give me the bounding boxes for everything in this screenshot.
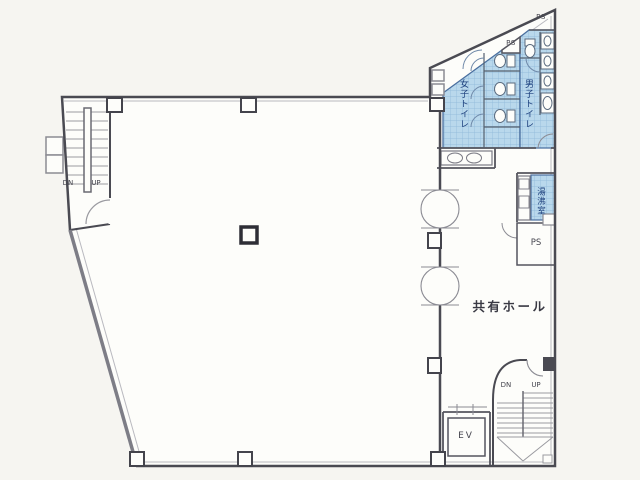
column <box>428 233 441 248</box>
floor-plan: DN UP PS PS 女子トイレ 男子トイレ 湯沸室 PS 共有ホール EV … <box>0 0 640 480</box>
column <box>428 358 441 373</box>
center-column <box>241 227 257 243</box>
label-elevator: EV <box>451 432 481 441</box>
label-stair-nw-up: UP <box>85 180 107 187</box>
label-stair-se-up: UP <box>524 382 548 389</box>
column <box>238 452 252 466</box>
column <box>432 84 444 95</box>
column <box>432 70 444 81</box>
label-womens-toilet: 女子トイレ <box>458 74 467 134</box>
stair-landing-ledge <box>46 137 63 155</box>
mens-stall-toilet <box>525 39 535 58</box>
urinals <box>541 33 554 113</box>
label-mens-toilet: 男子トイレ <box>523 74 532 134</box>
toilet-fixtures <box>495 55 516 123</box>
column <box>241 98 256 112</box>
label-pipe-shaft-low: PS <box>524 239 548 248</box>
label-pipe-shaft-top: PS <box>531 14 551 21</box>
wall-pier <box>543 357 555 371</box>
column <box>430 98 444 111</box>
wall-notch <box>543 214 555 225</box>
label-stair-se-dn: DN <box>494 382 518 389</box>
column <box>107 98 122 112</box>
kitchen-counter <box>518 176 530 220</box>
stair-corner-box <box>543 455 552 463</box>
wash-counter-area <box>437 148 495 168</box>
label-common-hall: 共有ホール <box>464 301 556 314</box>
column <box>130 452 144 466</box>
label-kitchenette: 湯沸室 <box>536 182 545 220</box>
label-stair-nw-dn: DN <box>57 180 79 187</box>
label-pipe-shaft-mid: PS <box>501 40 521 47</box>
column <box>431 452 445 466</box>
stair-landing-ledge <box>46 155 63 173</box>
